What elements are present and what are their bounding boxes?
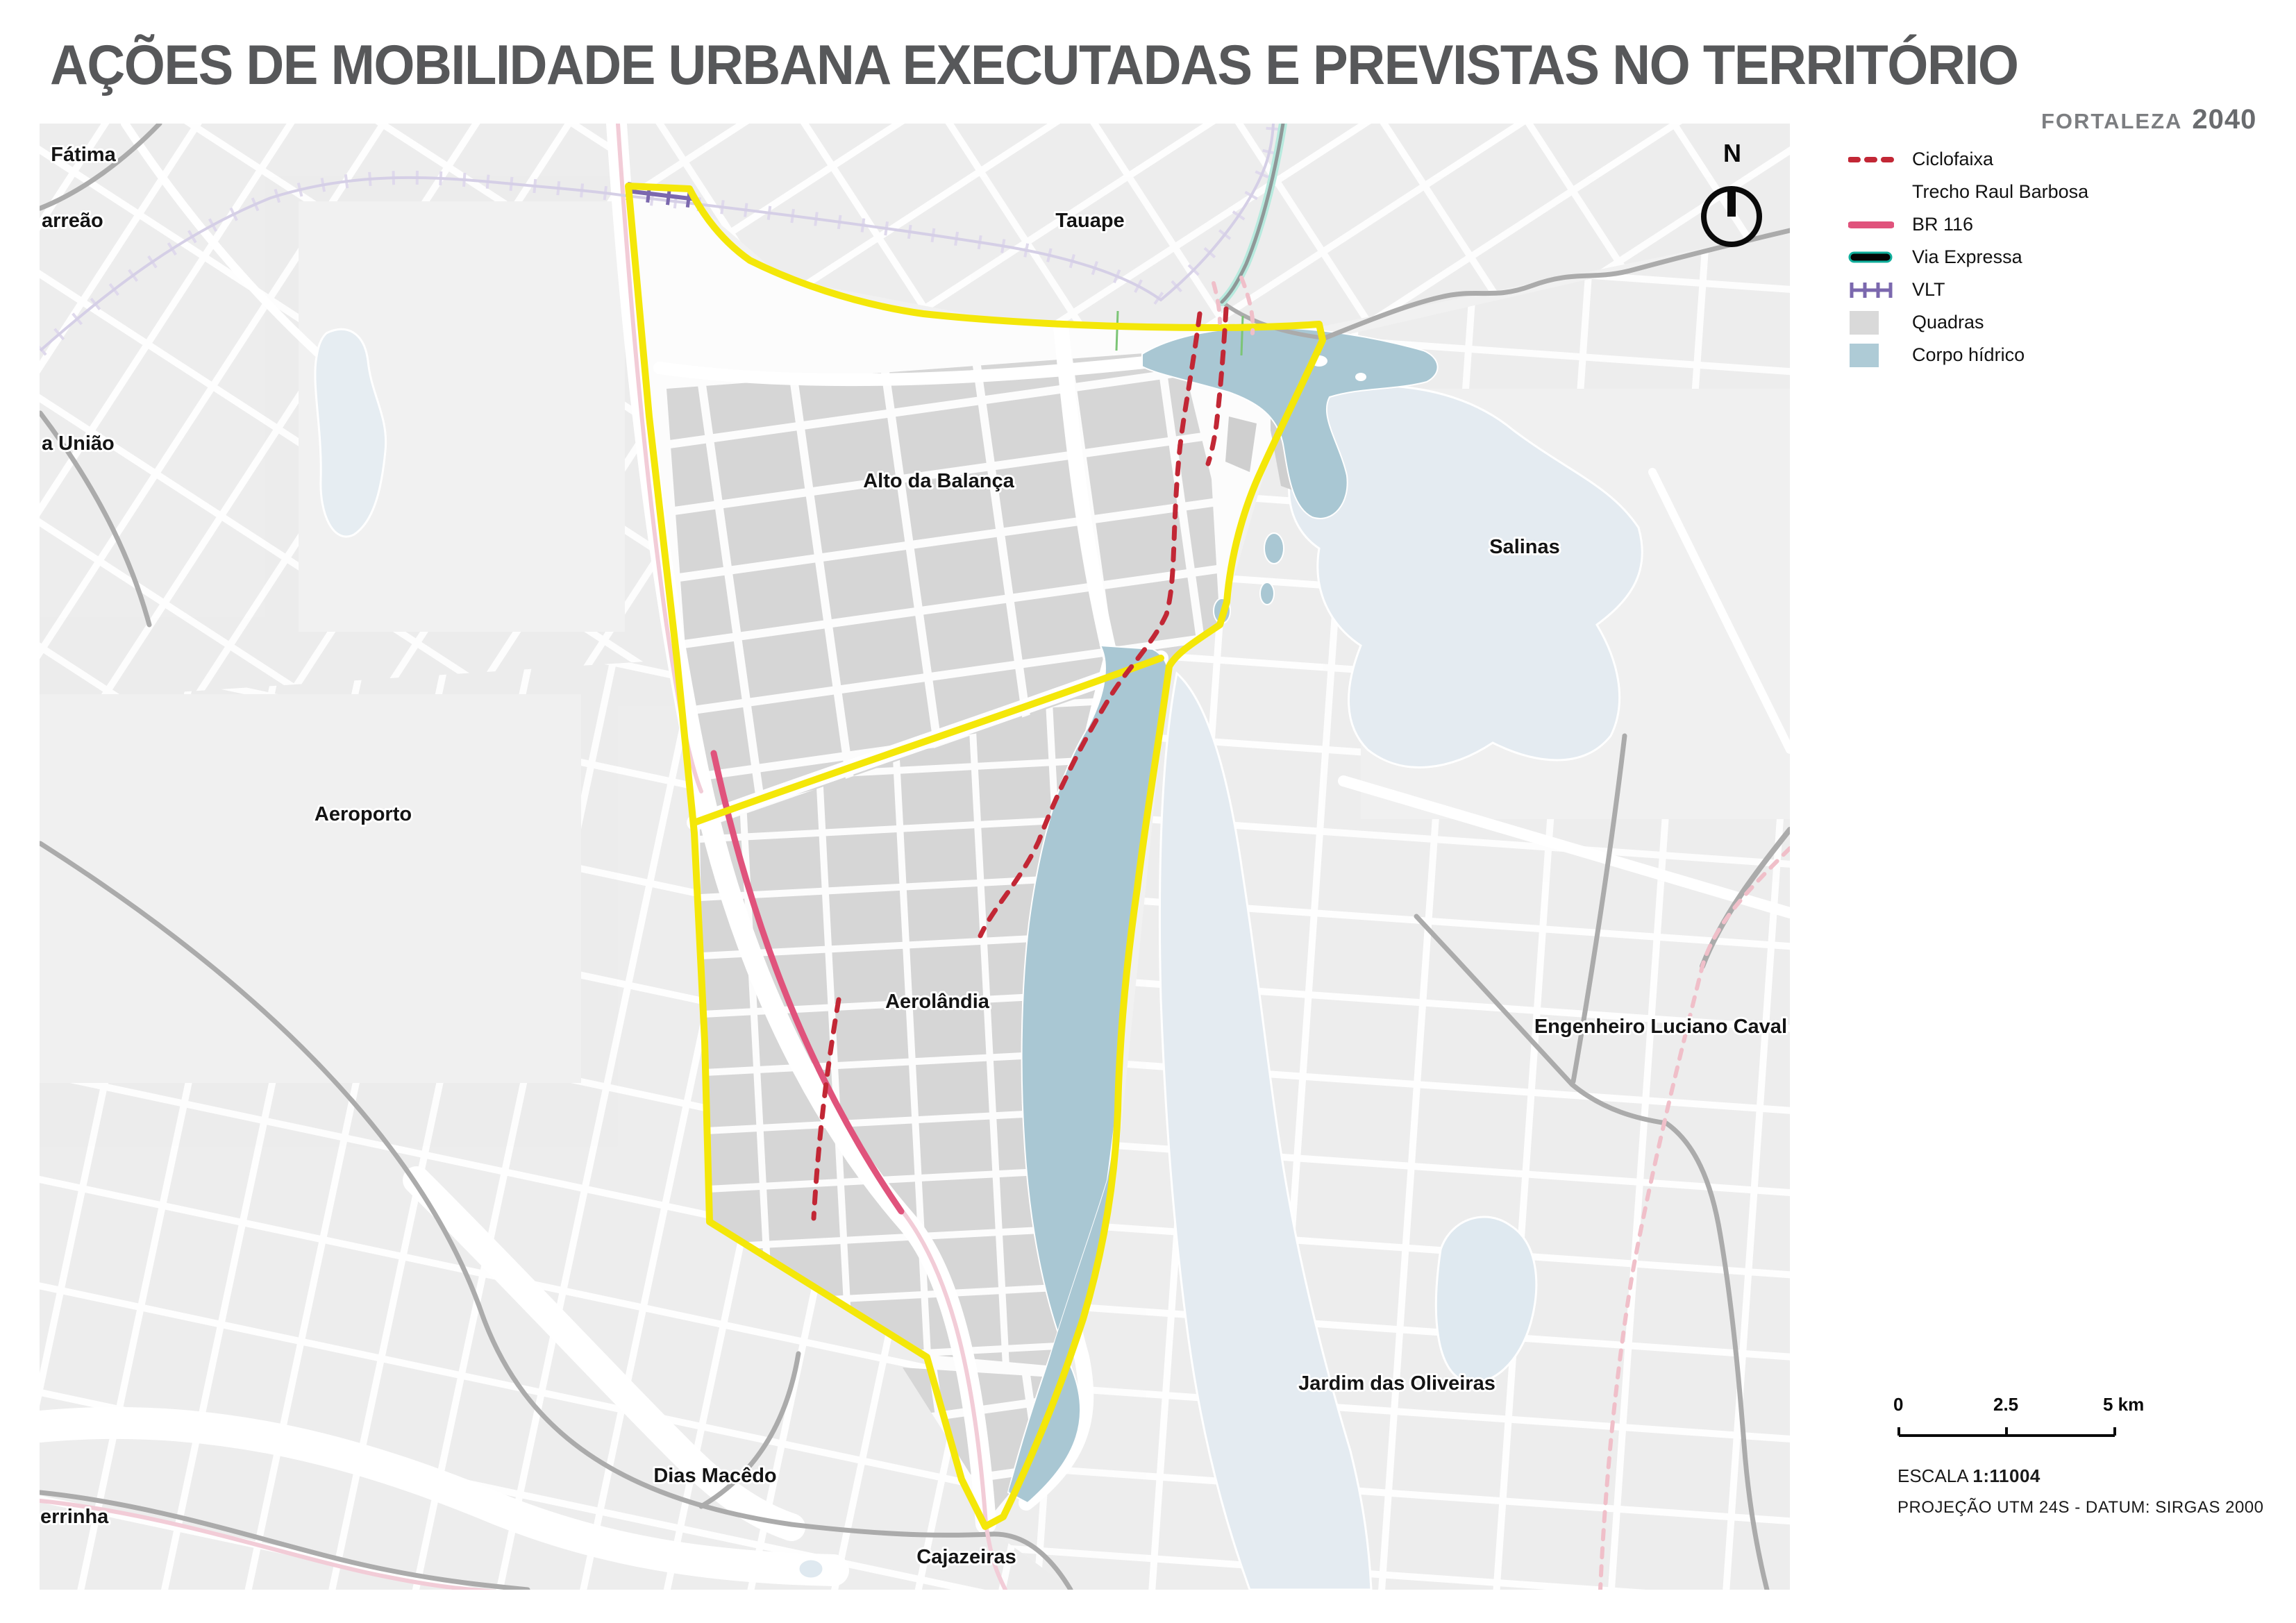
north-letter: N xyxy=(1694,139,1770,168)
projection-text: PROJEÇÃO UTM 24S - DATUM: SIRGAS 2000 xyxy=(1897,1498,2296,1517)
legend-item-ciclofaixa: Ciclofaixa xyxy=(1848,143,2088,176)
scalebar-tick-0: 0 xyxy=(1893,1394,1903,1415)
legend-swatch-br-116-icon xyxy=(1848,220,1912,230)
legend-label-ciclofaixa-trecho: Trecho Raul Barbosa xyxy=(1912,181,2088,203)
map-svg: FátimaarreãoTauapea UniãoAlto da Balança… xyxy=(40,124,1790,1590)
legend-label-corpo-hidrico: Corpo hídrico xyxy=(1912,344,2088,366)
escala-text: ESCALA 1:11004 xyxy=(1897,1465,2296,1487)
map-label-jardim-das-oliveiras: Jardim das Oliveiras xyxy=(1298,1372,1495,1395)
map-report-page: AÇÕES DE MOBILIDADE URBANA EXECUTADAS E … xyxy=(0,0,2296,1623)
map-label-tauape: Tauape xyxy=(1055,210,1124,232)
map-label-aeroporto: Aeroporto xyxy=(315,803,412,825)
map-label-eng-luciano-cavalcante: Engenheiro Luciano Caval xyxy=(1534,1016,1787,1038)
brand-year: 2040 xyxy=(2192,104,2256,135)
map-label-aerolandia: Aerolândia xyxy=(885,991,990,1013)
legend-item-via-expressa: Via Expressa xyxy=(1848,241,2088,274)
map-label-dias-macedo: Dias Macêdo xyxy=(653,1465,776,1487)
map-label-vila-uniao: a União xyxy=(42,432,115,455)
map-label-alto-da-balanca: Alto da Balança xyxy=(863,470,1014,492)
legend-swatch-corpo-hidrico-icon xyxy=(1848,342,1912,369)
scalebar xyxy=(1897,1424,2296,1442)
scalebar-tick-2: 5 km xyxy=(2103,1394,2144,1415)
legend-swatch-ciclofaixa-icon xyxy=(1848,155,1912,165)
legend-item-quadras: Quadras xyxy=(1848,306,2088,339)
legend-label-ciclofaixa: Ciclofaixa xyxy=(1912,149,2088,170)
legend-label-quadras: Quadras xyxy=(1912,312,2088,333)
map-canvas: FátimaarreãoTauapea UniãoAlto da Balança… xyxy=(40,124,1790,1590)
escala-label: ESCALA xyxy=(1897,1465,1968,1486)
legend-label-vlt: VLT xyxy=(1912,279,2088,301)
legend-swatch-quadras-icon xyxy=(1848,310,1912,336)
legend-swatch-via-expressa-icon xyxy=(1848,251,1912,264)
map-label-serrinha: errinha xyxy=(40,1506,109,1528)
scalebar-tick-1: 2.5 xyxy=(1993,1394,2018,1415)
legend-label-via-expressa: Via Expressa xyxy=(1912,246,2088,268)
legend-swatch-ciclofaixa-trecho-icon xyxy=(1848,187,1912,197)
map-label-fatima: Fátima xyxy=(51,144,116,166)
north-arrow: N xyxy=(1694,139,1770,257)
scale-block: 0 2.5 5 km ESCALA 1:11004 PROJEÇÃO UTM 2… xyxy=(1897,1394,2296,1517)
legend-item-ciclofaixa-trecho: Trecho Raul Barbosa xyxy=(1848,176,2088,208)
airport-open-area xyxy=(40,694,581,1083)
scalebar-labels: 0 2.5 5 km xyxy=(1897,1394,2296,1419)
legend-item-corpo-hidrico: Corpo hídrico xyxy=(1848,339,2088,371)
map-label-salinas: Salinas xyxy=(1489,536,1560,558)
legend-swatch-vlt-icon xyxy=(1848,280,1912,301)
page-title: AÇÕES DE MOBILIDADE URBANA EXECUTADAS E … xyxy=(50,33,2018,97)
map-label-cajazeiras: Cajazeiras xyxy=(916,1546,1016,1568)
legend-item-vlt: VLT xyxy=(1848,274,2088,306)
legend: CiclofaixaTrecho Raul BarbosaBR 116Via E… xyxy=(1848,143,2088,371)
fortaleza-2040-logo: FORTALEZA 2040 xyxy=(2041,104,2256,135)
brand-name: FORTALEZA xyxy=(2041,109,2182,134)
escala-value: 1:11004 xyxy=(1972,1465,2040,1486)
map-label-parreao: arreão xyxy=(42,210,103,232)
legend-label-br-116: BR 116 xyxy=(1912,214,2088,235)
legend-item-br-116: BR 116 xyxy=(1848,208,2088,241)
